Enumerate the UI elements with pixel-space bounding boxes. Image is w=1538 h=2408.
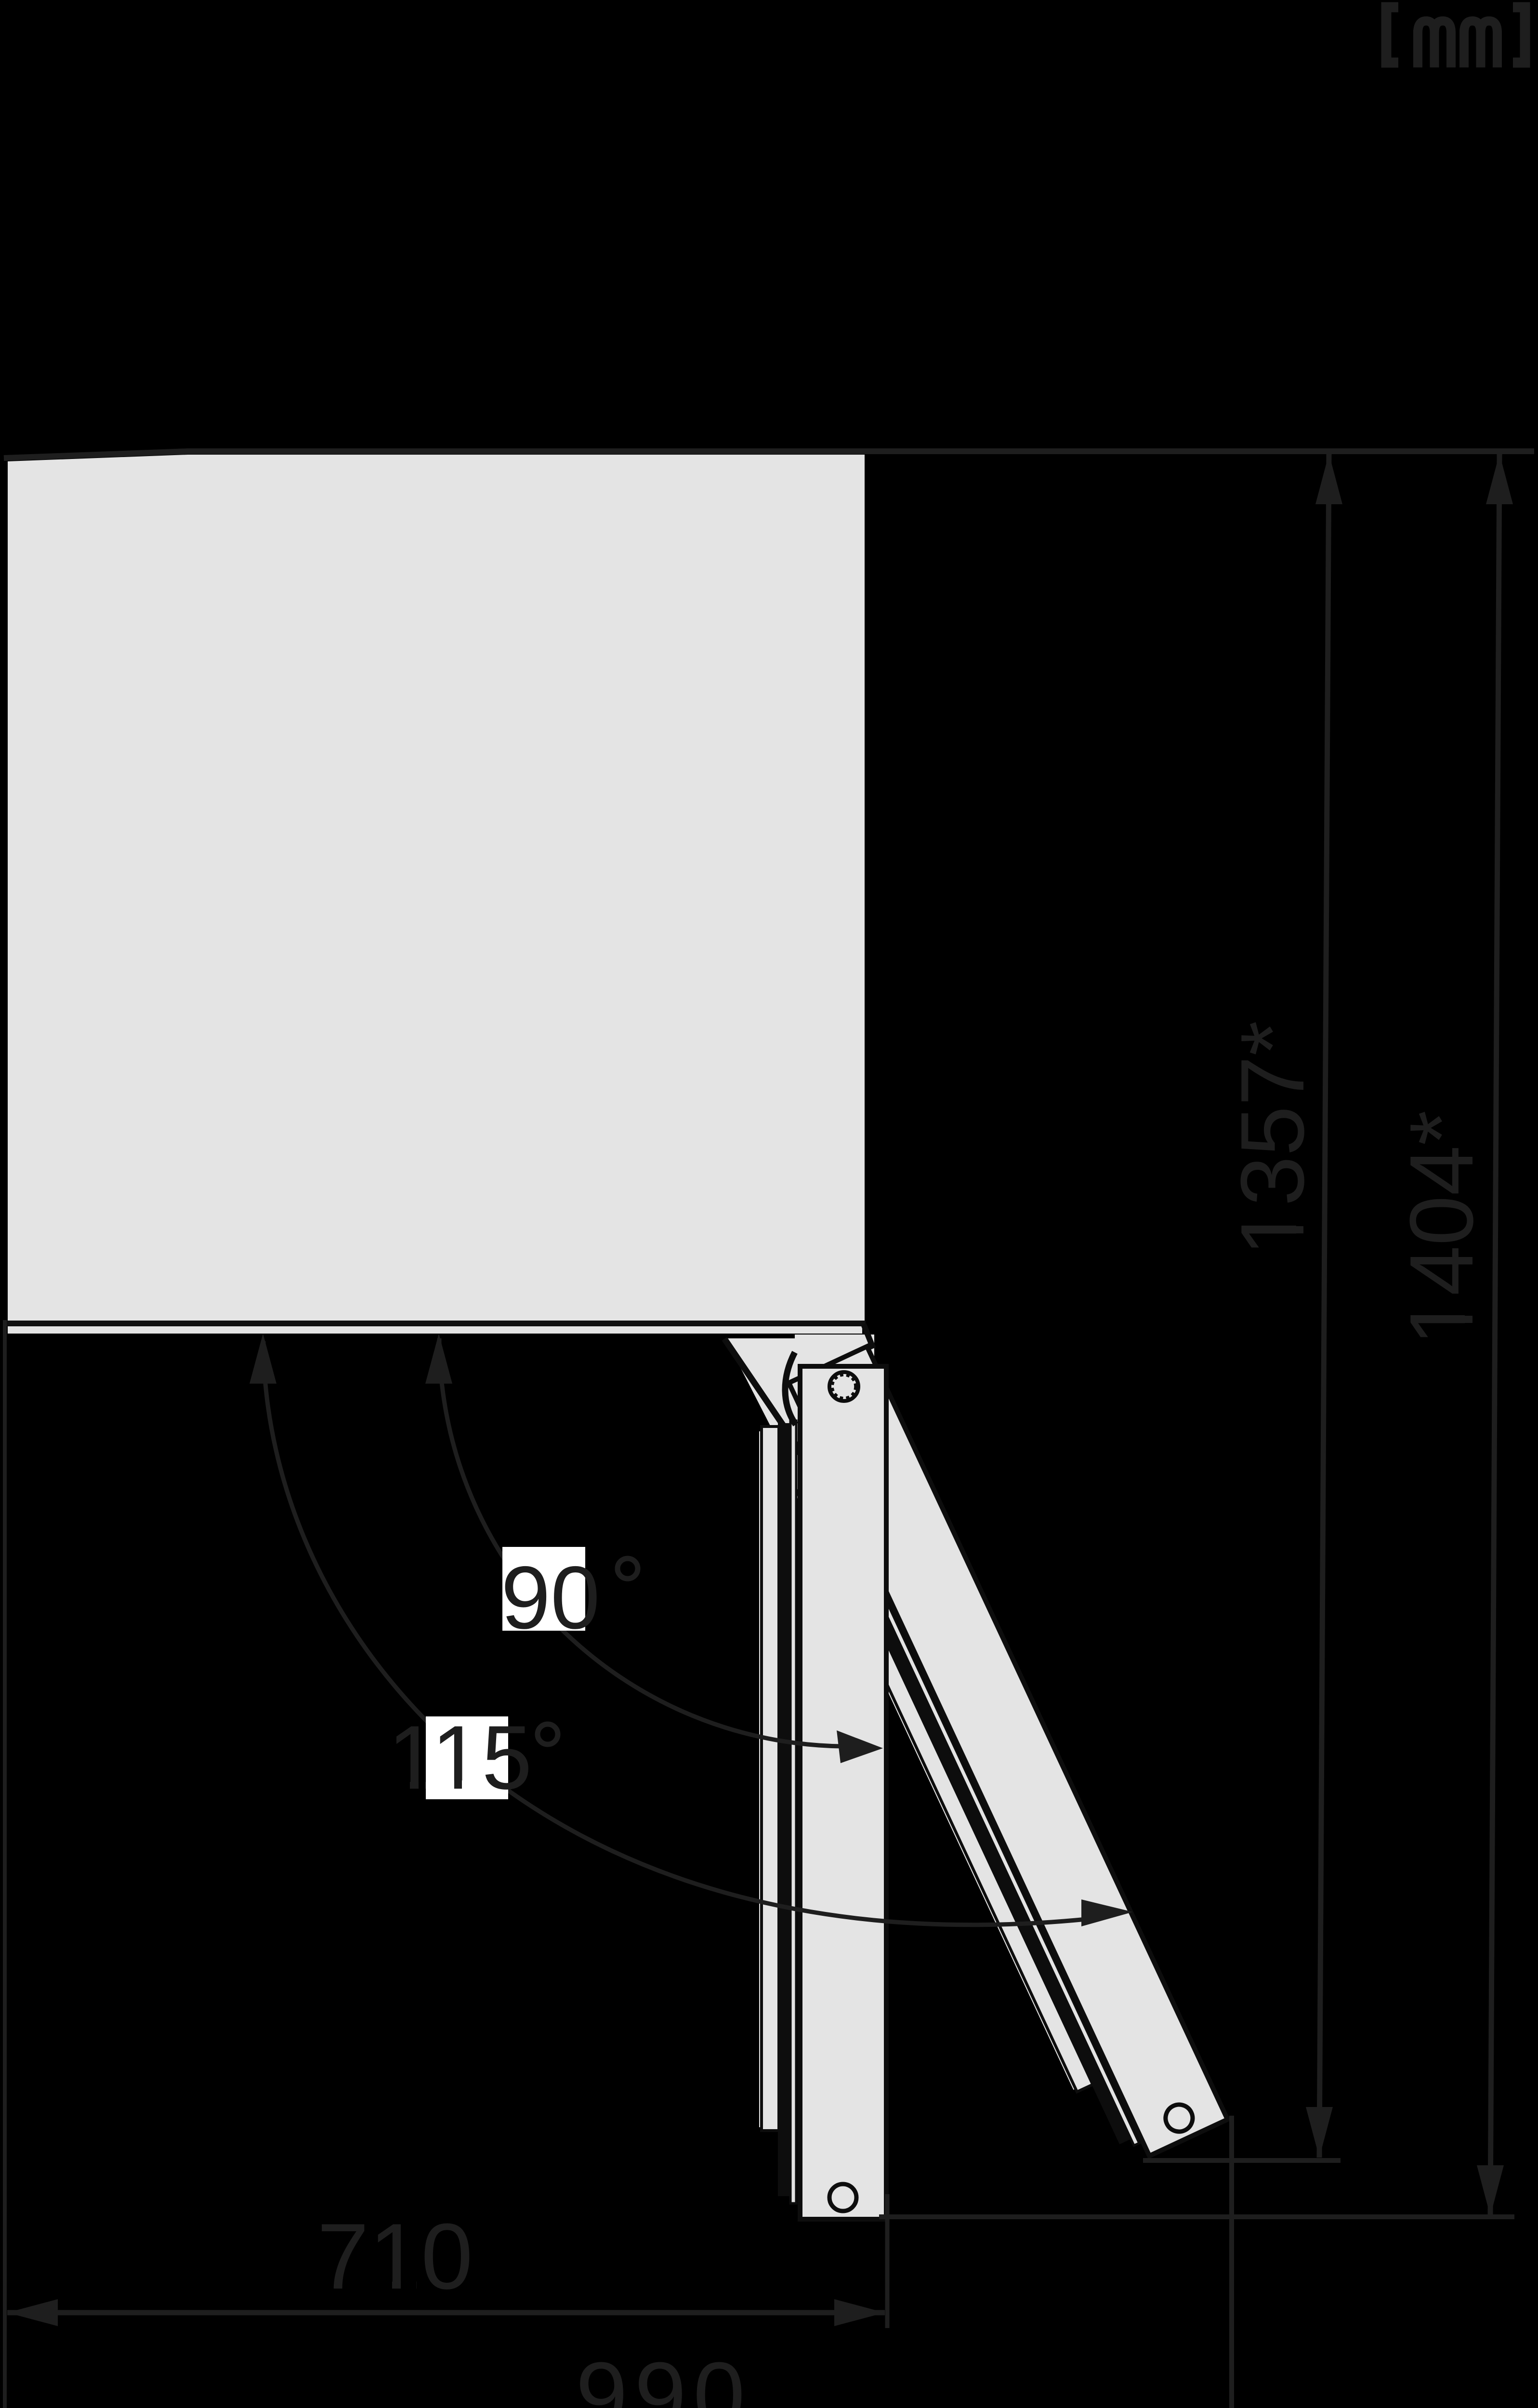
svg-text:1404*: 1404* [1391, 1111, 1492, 1346]
svg-text:90: 90 [501, 1548, 600, 1648]
svg-text:1357*: 1357* [1222, 1021, 1323, 1256]
svg-text:710: 710 [317, 2204, 473, 2309]
svg-text:115: 115 [388, 1707, 532, 1808]
svg-text:990: 990 [576, 2343, 752, 2408]
